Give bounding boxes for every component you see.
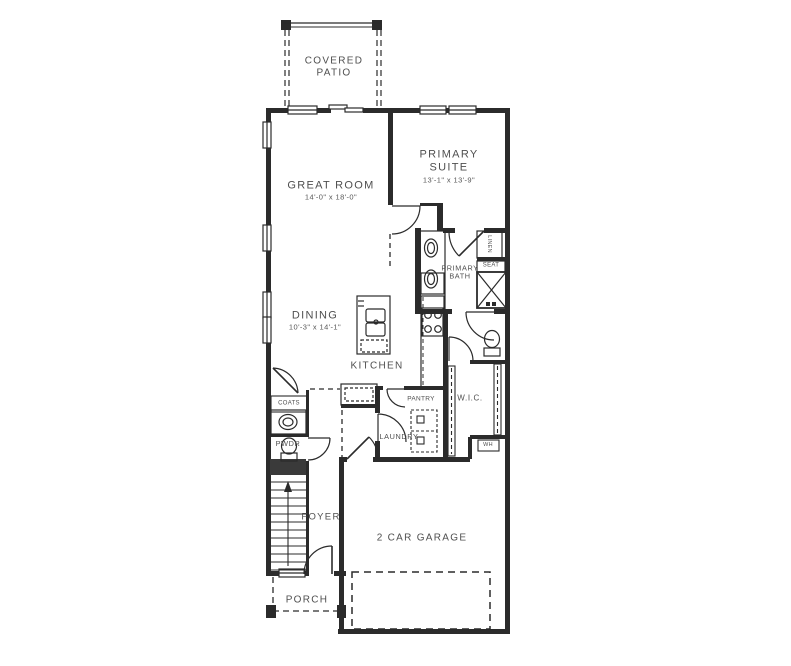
label-seat: SEAT [483,263,499,270]
window-suite-top-1 [420,106,446,114]
label-dining-dims: 10'-3" x 14'-1" [289,324,341,333]
garage-door-outline [352,572,490,629]
patio-post-left [281,20,291,30]
kitchen-south-counter [341,384,377,405]
label-primary-bath: PRIMARY BATH [441,265,478,282]
window-great-room-left-1 [263,122,271,148]
patio-sliding-door [329,105,363,112]
primary-toilet [484,331,500,357]
kitchen-fixtures [341,273,444,405]
door-toilet-room [466,312,494,340]
pwdr-counter [271,410,306,434]
label-porch: PORCH [286,594,329,606]
label-laundry: LAUNDRY [380,433,419,441]
label-great-room: GREAT ROOM [287,180,374,193]
pwdr-sink [279,415,297,430]
island-dishwasher [361,340,387,352]
label-dining: DINING [292,310,338,323]
label-foyer: FOYER [301,513,340,524]
label-primary-suite-dims: 13'-1" x 13'-9" [423,177,475,186]
label-pwdr: PWDR [276,440,301,448]
door-suite-bath-angled [449,231,484,256]
label-great-room-dims: 14'-0" x 18'-0" [305,194,357,203]
label-coats: COATS [278,401,300,408]
stair-arrow [284,481,292,492]
label-garage: 2 CAR GARAGE [377,532,468,544]
door-wic [449,337,473,361]
shower [477,272,506,308]
window-dining-left-2 [263,317,271,343]
floor-plan-canvas: COVERED PATIO GREAT ROOM 14'-0" x 18'-0"… [0,0,791,666]
label-pantry: PANTRY [407,395,435,402]
label-wh: WH [483,442,493,448]
door-pwdr [308,438,330,460]
shower-drain [486,302,490,306]
burner [435,326,442,333]
door-garage-entry [347,437,378,459]
window-suite-top-2 [449,106,476,114]
kitchen-island [357,296,390,354]
vanity-sink-1 [425,239,438,257]
patio-post-right [372,20,382,30]
label-kitchen: KITCHEN [351,360,404,372]
door-pantry [387,389,405,407]
porch-right-post [337,605,346,618]
burner [425,326,432,333]
label-wic: W.I.C. [457,393,482,402]
window-great-room-left-2 [263,225,271,251]
label-covered-patio: COVERED PATIO [305,56,364,79]
wic-hanging-rods [448,364,501,456]
island-sink-basin-2 [366,323,385,336]
floor-plan-drawing [0,0,791,666]
label-linen: LINEN [486,235,492,253]
window-great-room-top [288,106,317,114]
kitchen-east-counter [421,273,444,389]
label-primary-suite: PRIMARY SUITE [419,148,478,173]
door-coats [273,368,298,393]
window-dining-left-1 [263,292,271,318]
